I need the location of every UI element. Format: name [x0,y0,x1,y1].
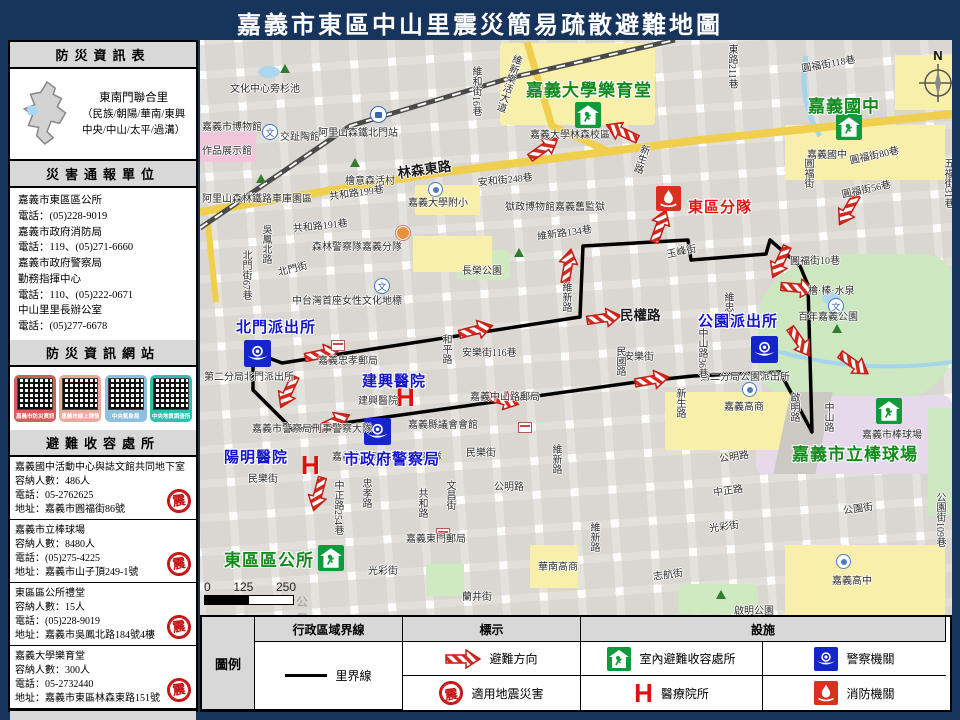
map-scale: 0 125 250 公尺 [204,580,314,605]
qr-image [62,378,98,410]
map-street-label: 中正路254巷 [330,480,345,535]
map-poi-label: 東區區公所 [224,546,314,571]
compass-rose-icon [918,63,952,103]
tree-icon [832,324,842,333]
contact-line: 嘉義市政府消防局 [18,225,188,241]
map-street-label: 維新路 [558,282,573,312]
map-street-label: 嘉義高中 [832,572,872,587]
map-poi-label: 嘉義市立棒球場 [792,440,918,465]
station-icon [370,106,387,123]
map-street-label: 嘉義大學林森校區 [530,126,610,141]
post-office-icon [518,422,532,433]
map-street-label: 中山路 [820,402,835,432]
shelter-entry: 嘉義市立棒球場 容納人數：8480人 電話：(05)275-4225 地址：嘉義… [10,520,196,583]
map-street-label: 第二分局公園派出所 [700,368,790,383]
police-icon [814,647,838,671]
map-street-label: 維新路 [548,444,563,474]
map-street-label: 嘉義中山路郵局 [470,388,540,403]
map-street-label: 百年嘉義公園 [798,308,858,323]
map-poi-label: 嘉義大學樂育堂 [526,76,652,101]
websites-header: 防災資訊網站 [10,340,196,367]
map-street-label: 中台灣首座女性文化地標 [292,292,402,307]
info-table-header: 防災資訊表 [10,42,196,69]
sidebar: 防災資訊表 東南門聯合里 （民族/朝陽/華南/東興 中央/中山/太平/過溝） 災… [8,40,198,712]
road-wufeng-north [208,224,216,302]
legend-evac-item: 避難方向 [403,642,581,676]
map-street-label: 圓福街 [800,158,815,188]
shelters-header: 避難收容處所 [10,430,196,457]
school-icon [836,554,851,569]
map-street-label: 華南高商 [538,558,578,573]
map-poi-label: 建興醫院 [362,370,426,391]
map-street-label: 中山路36巷 [694,328,709,378]
hospital-icon: H [301,452,320,478]
map-street-label: 安樂街 [624,348,654,363]
evacuation-map-poster: 嘉義市東區中山里震災簡易疏散避難地圖 防災資訊表 東南門聯合里 （民族/朝陽/華… [0,0,960,720]
qr-code-online-petition: 嘉義市線上陳情 [59,375,101,422]
tree-icon [514,248,524,257]
contact-line: 電話：119、(05)271-6660 [18,240,188,256]
map-street-label: 忠孝路 [358,478,373,508]
legend: 圖例 行政區域界線 標示 設施 里界線 避難方向 室內避難收容處所 警察機關 震… [200,615,952,712]
map-street-label: 光彩街 [368,562,398,577]
map-street-label: 長榮公園 [462,262,502,277]
shelter-icon [318,545,344,571]
map-street-label: 圓福街10巷 [790,252,840,267]
compass: N [918,48,952,108]
tree-icon [716,590,726,599]
map-street-label: 阿里山森鐵北門站 [318,124,398,139]
shelter-entry: 嘉義國中活動中心與誌文館共同地下室 容納人數：486人 電話：05-276262… [10,457,196,520]
contact-list: 嘉義市東區區公所 電話：(05)228-9019 嘉義市政府消防局 電話：119… [10,188,196,340]
map-poi-label: 市政府警察局 [344,448,440,469]
map-poi-label: 陽明醫院 [224,446,288,467]
legend-fire-item: 消防機關 [763,676,946,710]
map-street-label: 維和街16巷 [468,66,483,116]
map-street-label: 啟明路 [786,392,801,422]
map-street-label: 第二分局北門派出所 [204,368,294,383]
map-street-label: 吳鳳北路 [258,224,273,264]
qr-code-geological-survey: 中央地質調查所 [150,375,192,422]
map-street-label: 建興醫院 [358,392,398,407]
district-detail-2: 中央/中山/太平/過溝） [82,123,185,139]
qr-image [17,378,53,410]
legend-boundary-item: 里界線 [255,642,403,710]
map-street-label: 文化中心旁杉池 [230,80,300,95]
shelter-icon [836,114,862,140]
legend-col-facilities: 設施 [581,617,946,642]
publish-note: 東區區公所111年7月製作 [10,709,196,720]
map-street-label: 安樂街116巷 [462,344,517,359]
district-detail-1: （民族/朝陽/華南/東興 [82,107,185,123]
map-street-label: 交趾陶館 [280,128,320,143]
shelter-list: 嘉義國中活動中心與誌文館共同地下室 容納人數：486人 電話：05-276262… [10,457,196,709]
map-street-label: 獄政博物館嘉義舊監獄 [505,198,605,213]
qr-image [108,378,144,410]
shelter-icon [607,647,631,671]
map-street-label: 公明路 [494,478,524,493]
qr-row: 嘉義市防災資訊網 嘉義市線上陳情 中央氣象局 中央地質調查所 [10,367,196,430]
shelter-entry: 東區區公所禮堂 容納人數：15人 電話：(05)228-9019 地址：嘉義市吳… [10,583,196,646]
legend-shelter-item: 室內避難收容處所 [581,642,763,676]
map-street-label: 五福街31巷 [940,158,952,208]
map-street-label: 嘉義市警察局刑事警察大隊 [252,420,372,435]
map-street-label: 民權路 [620,304,661,324]
map-street-label: 蘭井街 [462,588,492,603]
district-name: 東南門聯合里 [82,90,185,107]
legend-col-boundary: 行政區域界線 [255,617,403,642]
scale-bar [204,595,294,605]
contact-line: 電話：110、(05)222-0671 [18,288,188,304]
district-overview: 東南門聯合里 （民族/朝陽/華南/東興 中央/中山/太平/過溝） [10,69,196,159]
map-street-label: 民樂街 [466,444,496,459]
contact-line: 電話：(05)228-9019 [18,209,188,225]
hospital-icon: H [634,680,653,706]
map-street-label: 民國路 [612,346,627,376]
post-office-icon [331,340,345,351]
shelter-entry: 嘉義大學樂育堂 容納人數：300人 電話：05-2732440 地址：嘉義市東區… [10,646,196,709]
boundary-line-sample [285,674,327,677]
map-street-label: 啟明公園 [734,602,774,615]
map-street-label: 嘉義市棒球場 [862,426,922,441]
map-poi-label: 東區分隊 [688,196,752,217]
district-shape [16,76,78,152]
contact-line: 中山里里長辦公室 [18,303,188,319]
shelter-icon [575,102,601,128]
page-title: 嘉義市東區中山里震災簡易疏散避難地圖 [237,5,723,40]
map-poi-label: 嘉義國中 [808,92,880,117]
legend-col-marks: 標示 [403,617,581,642]
map-street-label: 阿里山森林鐵路車庫園區 [202,190,312,205]
map-street-label: 森林警察隊嘉義分隊 [312,238,402,253]
evacuation-arrow-icon [445,649,481,669]
map-poi-label: 公園派出所 [698,310,778,331]
contact-line: 電話：(05)277-6678 [18,319,188,335]
tree-icon [280,64,290,73]
culture-icon: 文 [262,124,278,140]
qr-code-weather-bureau: 中央氣象局 [105,375,147,422]
tree-icon [256,174,266,183]
map: N 0 125 250 公尺 文化中心旁杉池嘉義市博物館交趾陶館阿里山森鐵北門站… [200,40,952,615]
map-street-label: 嘉義大學附小 [408,194,468,209]
earthquake-seal: 震 [438,679,465,706]
map-street-label: 嘉義東門郵局 [406,530,466,545]
map-poi-label: 北門派出所 [236,316,316,337]
fire-icon [814,681,838,705]
police-icon [244,340,271,367]
contact-line: 勤務指揮中心 [18,272,188,288]
legend-hospital-item: H 醫療院所 [581,676,763,710]
contact-line: 嘉義市東區區公所 [18,193,188,209]
map-street-label: 東路211巷 [724,44,739,89]
map-street-label: 文昌街 [442,480,457,510]
tree-icon [350,158,360,167]
qr-image [153,378,189,410]
contact-line: 嘉義市政府警察局 [18,256,188,272]
title-bar: 嘉義市東區中山里震災簡易疏散避難地圖 [8,6,952,39]
report-units-header: 災害通報單位 [10,159,196,188]
school-icon [742,382,757,397]
map-street-label: 嘉義縣議會會館 [408,416,478,431]
map-street-label: 維新路 [586,522,601,552]
map-street-label: 作品展示館 [202,142,252,157]
police-icon [751,336,778,363]
legend-police-item: 警察機關 [763,642,946,676]
map-street-label: 新生路 [672,388,687,418]
legend-quake-item: 震 適用地震災害 [403,676,581,710]
map-street-label: 北門街67巷 [238,250,253,300]
map-street-label: 和平路 [438,334,453,364]
map-street-label: 檜·棒·水泉 [808,282,855,297]
map-street-label: 共和路 [414,488,429,518]
map-street-label: 嘉義忠孝郵局 [318,352,378,367]
legend-title: 圖例 [202,617,255,710]
map-street-label: 公園街109巷 [932,492,947,547]
fire-icon [656,186,681,211]
map-street-label: 民樂街 [248,470,278,485]
shelter-icon [876,398,902,424]
qr-code-disaster-info: 嘉義市防災資訊網 [14,375,56,422]
map-street-label: 嘉義市博物館 [202,118,262,133]
map-street-label: 嘉義高商 [724,398,764,413]
